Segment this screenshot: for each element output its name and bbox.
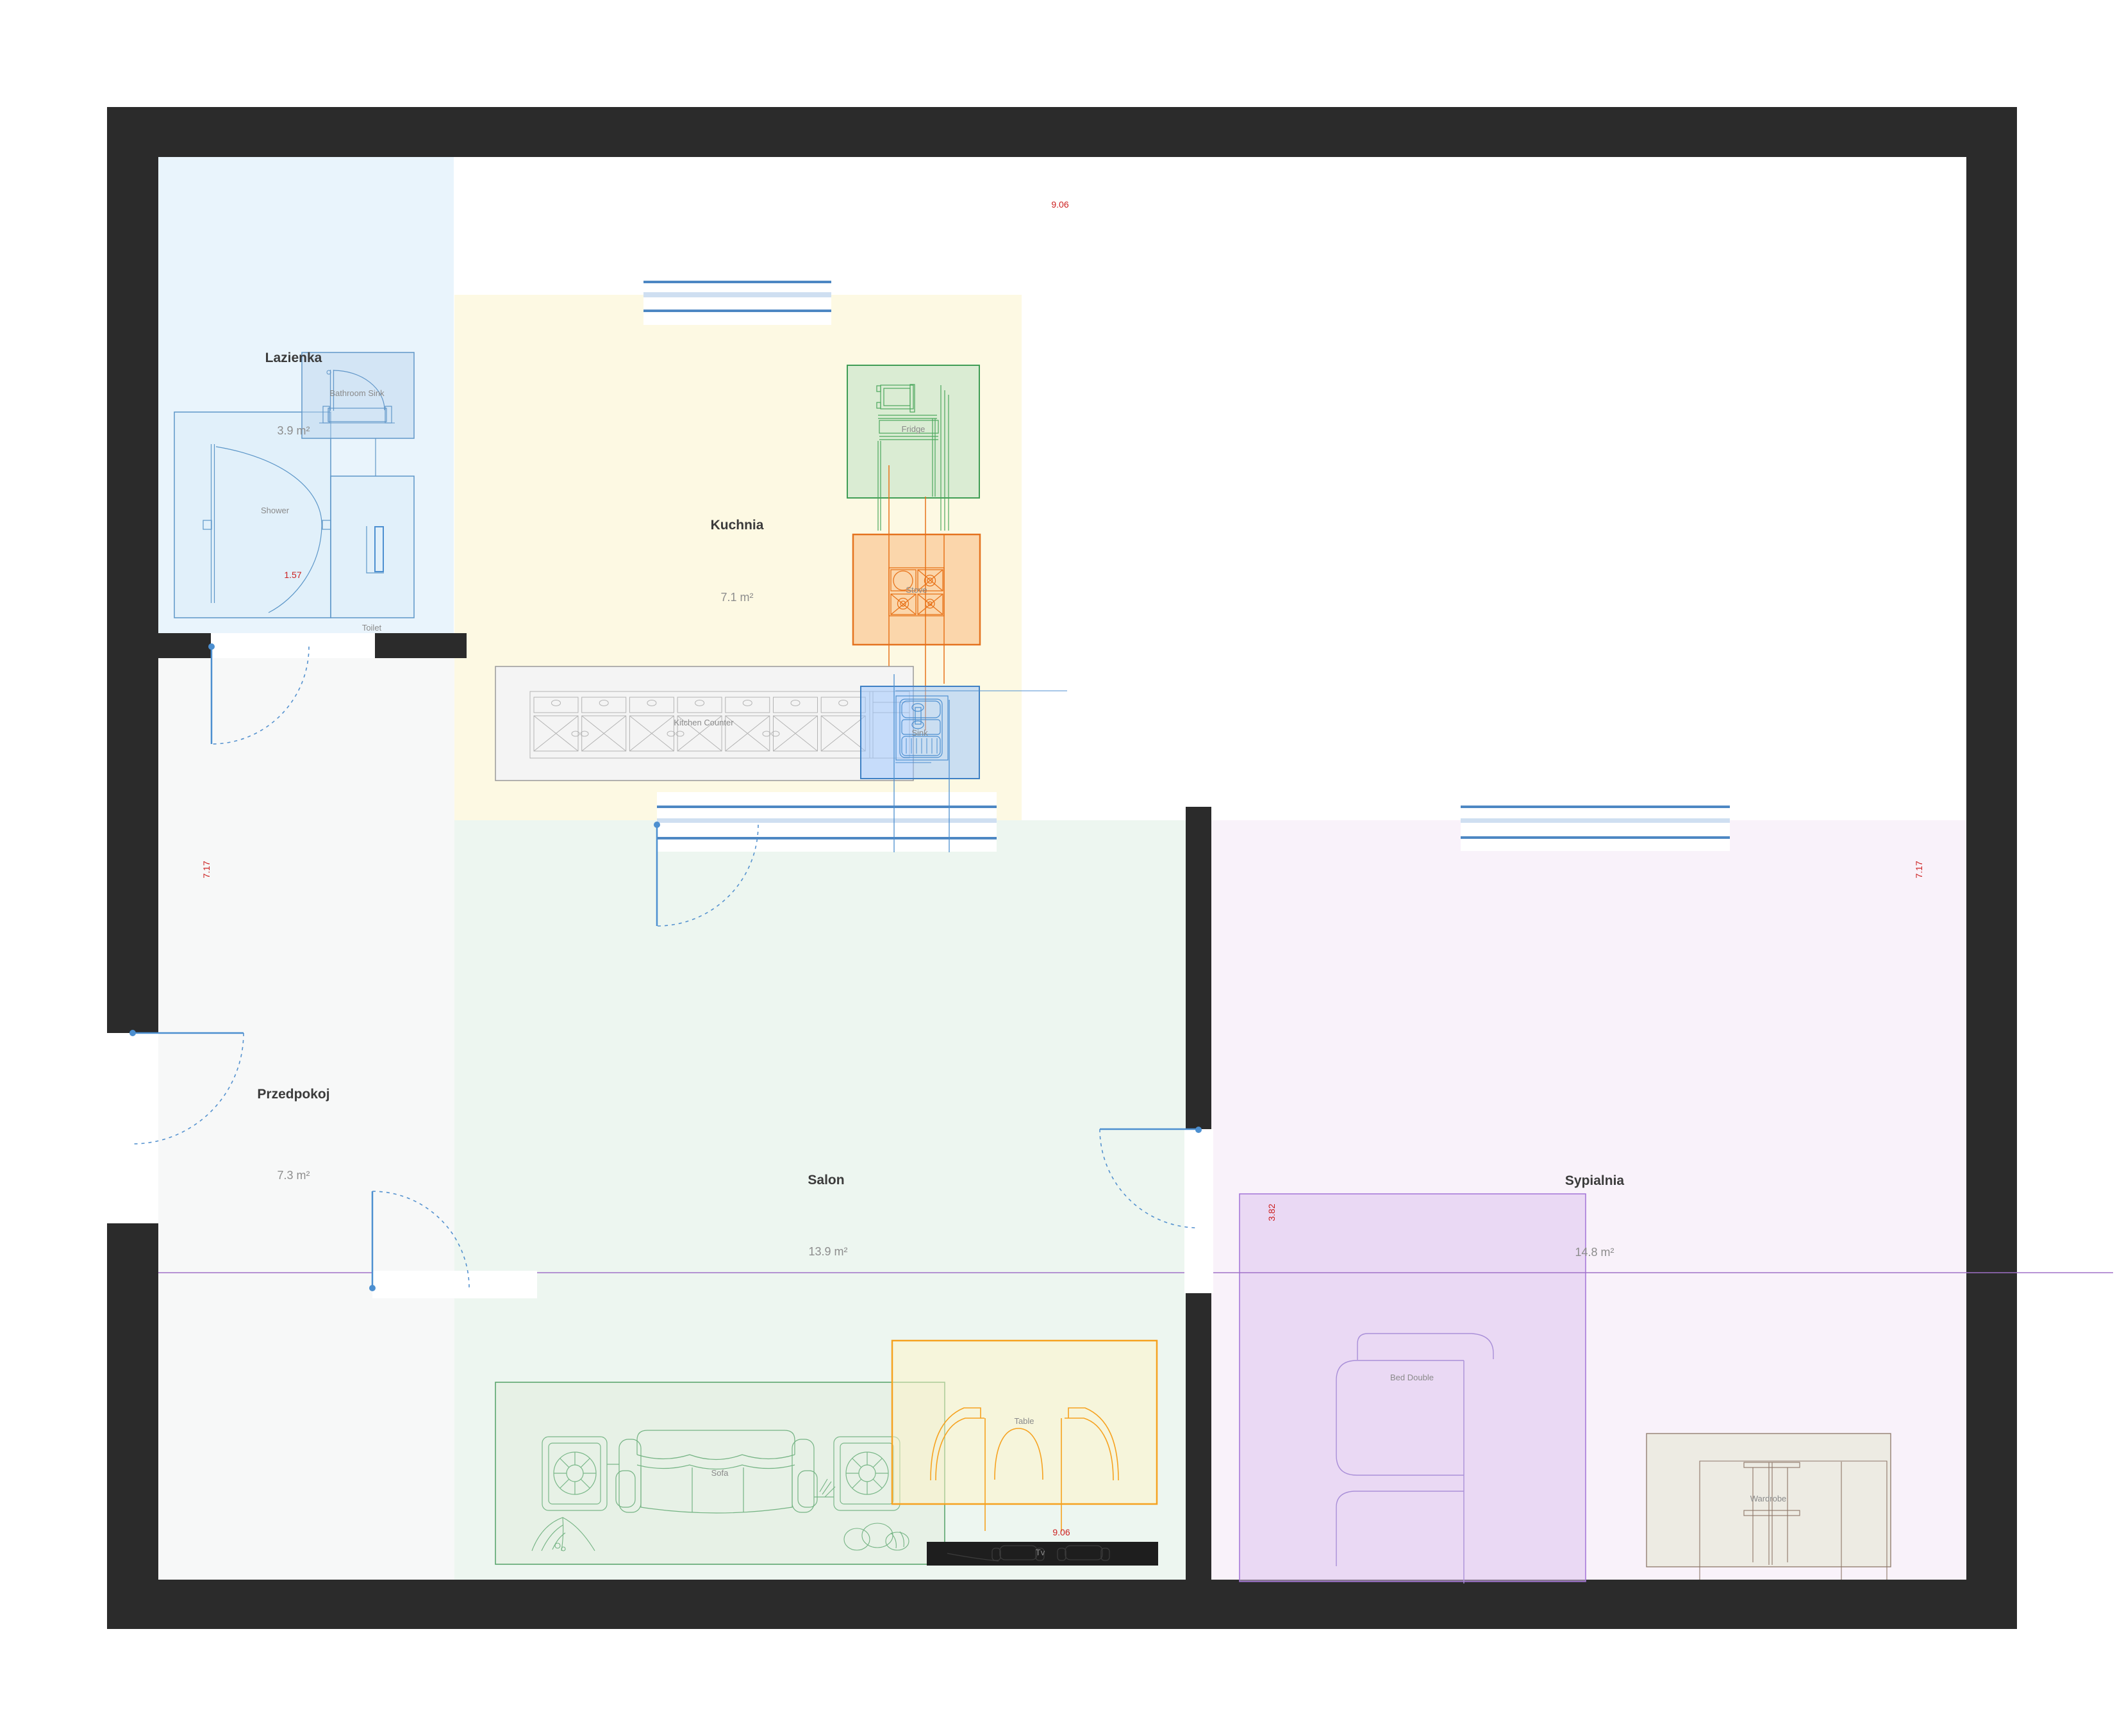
svg-text:Shower: Shower bbox=[261, 506, 290, 515]
svg-text:Sypialnia: Sypialnia bbox=[1565, 1173, 1625, 1188]
svg-text:9.06: 9.06 bbox=[1052, 1527, 1070, 1537]
svg-text:1.57: 1.57 bbox=[284, 570, 301, 580]
svg-text:Stove: Stove bbox=[906, 585, 927, 595]
svg-text:3.9 m²: 3.9 m² bbox=[277, 424, 310, 437]
svg-text:Salon: Salon bbox=[808, 1173, 844, 1187]
svg-text:Table: Table bbox=[1014, 1416, 1034, 1426]
svg-text:3.82: 3.82 bbox=[1266, 1203, 1277, 1221]
svg-text:Sofa: Sofa bbox=[711, 1468, 729, 1478]
svg-text:Przedpokoj: Przedpokoj bbox=[257, 1087, 329, 1102]
svg-text:7.3 m²: 7.3 m² bbox=[277, 1169, 310, 1182]
svg-text:Bathroom Sink: Bathroom Sink bbox=[329, 388, 385, 398]
svg-text:Kitchen Counter: Kitchen Counter bbox=[674, 718, 734, 727]
svg-text:7.1 m²: 7.1 m² bbox=[720, 591, 753, 604]
svg-text:14.8 m²: 14.8 m² bbox=[1575, 1246, 1614, 1259]
svg-text:Sink: Sink bbox=[911, 728, 928, 738]
svg-text:7.17: 7.17 bbox=[1914, 861, 1924, 878]
svg-text:Lazienka: Lazienka bbox=[265, 351, 322, 365]
svg-text:Tv: Tv bbox=[1036, 1548, 1045, 1557]
svg-text:Bed Double: Bed Double bbox=[1390, 1373, 1434, 1382]
svg-text:Kuchnia: Kuchnia bbox=[711, 518, 764, 533]
svg-text:7.17: 7.17 bbox=[201, 861, 212, 878]
svg-text:Toilet: Toilet bbox=[362, 623, 382, 632]
svg-text:13.9 m²: 13.9 m² bbox=[808, 1245, 847, 1258]
svg-text:Fridge: Fridge bbox=[902, 424, 925, 434]
svg-text:9.06: 9.06 bbox=[1051, 199, 1068, 210]
svg-text:Wardrobe: Wardrobe bbox=[1750, 1494, 1787, 1503]
